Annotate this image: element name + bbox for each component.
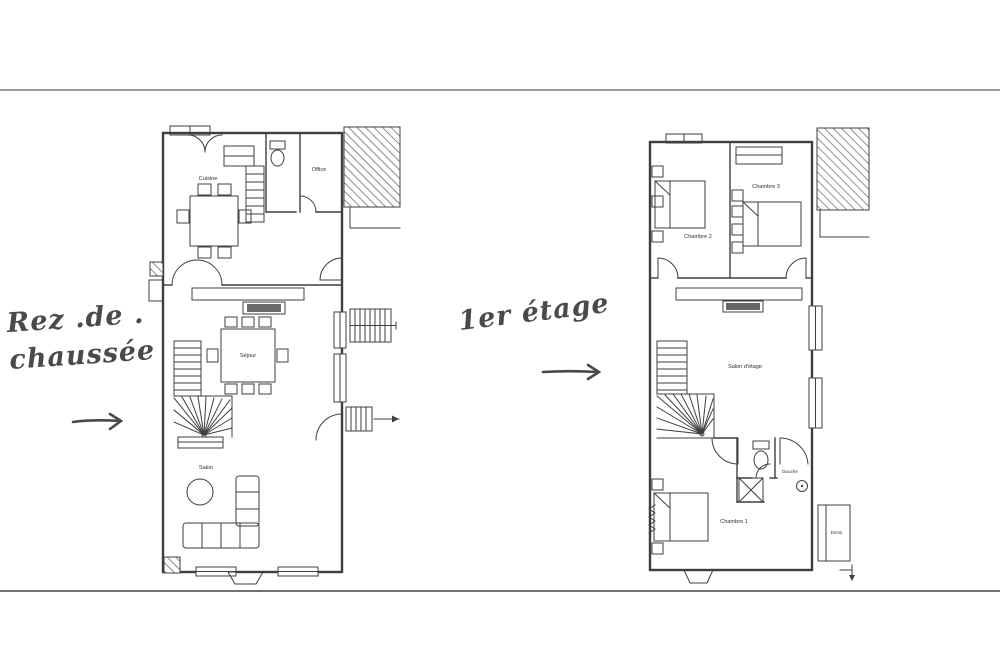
room-label-salon: Salon bbox=[199, 465, 213, 471]
kitchen-table bbox=[177, 184, 251, 258]
first-floor-annotation-label: 1er étage bbox=[456, 285, 611, 340]
exterior-walls bbox=[650, 142, 812, 570]
entry-step bbox=[684, 565, 855, 583]
room-label-chambre3: Chambre 3 bbox=[752, 184, 780, 190]
room-label-dressing: Dress. bbox=[831, 530, 844, 535]
party-wall-hatching bbox=[817, 128, 869, 237]
right-arrow-icon bbox=[70, 406, 132, 436]
ground-floor-plan: Cuisine Office Séjour Salon bbox=[145, 118, 410, 588]
staircase bbox=[657, 341, 714, 438]
room-label-chambre2: Chambre 2 bbox=[684, 234, 712, 240]
wall-piers bbox=[149, 262, 180, 573]
fireplace bbox=[243, 302, 285, 314]
party-wall-hatching bbox=[344, 127, 400, 228]
right-arrow-icon bbox=[540, 356, 610, 386]
bed-chambre1 bbox=[652, 479, 708, 554]
room-label-salon-etage: Salon d'étage bbox=[728, 364, 762, 370]
shower-icon bbox=[739, 478, 763, 502]
first-floor-plan: Chambre 2 Chambre 3 Salon d'étage Douche… bbox=[635, 118, 880, 598]
room-label-cuisine: Cuisine bbox=[199, 176, 218, 182]
entrance-steps bbox=[346, 407, 399, 431]
top-horizontal-rule bbox=[0, 89, 1000, 91]
fireplace bbox=[723, 301, 763, 312]
scanned-floorplan-sheet: Rez .de . chaussée 1er étage bbox=[0, 0, 1000, 666]
ground-floor-annotation: Rez .de . chaussée bbox=[6, 295, 157, 379]
staircase bbox=[174, 341, 232, 437]
sideboard bbox=[192, 288, 304, 300]
closet-chambre3 bbox=[736, 147, 782, 164]
sideboard bbox=[676, 288, 802, 300]
room-label-office: Office bbox=[312, 167, 327, 173]
interior-walls bbox=[650, 142, 812, 502]
toilet-icon bbox=[753, 441, 769, 469]
room-label-chambre1: Chambre 1 bbox=[720, 519, 748, 525]
sink-icon bbox=[797, 481, 808, 492]
first-floor-annotation: 1er étage bbox=[456, 285, 611, 340]
bed-chambre3 bbox=[732, 190, 801, 253]
console-table bbox=[178, 437, 223, 448]
room-label-sejour: Séjour bbox=[240, 353, 256, 359]
room-label-douche: Douche bbox=[782, 469, 798, 474]
bed-chambre2 bbox=[652, 166, 705, 242]
exterior-stair bbox=[350, 309, 396, 342]
corner-sofa bbox=[183, 476, 259, 548]
toilet-icon bbox=[270, 141, 285, 166]
round-table bbox=[187, 479, 213, 505]
